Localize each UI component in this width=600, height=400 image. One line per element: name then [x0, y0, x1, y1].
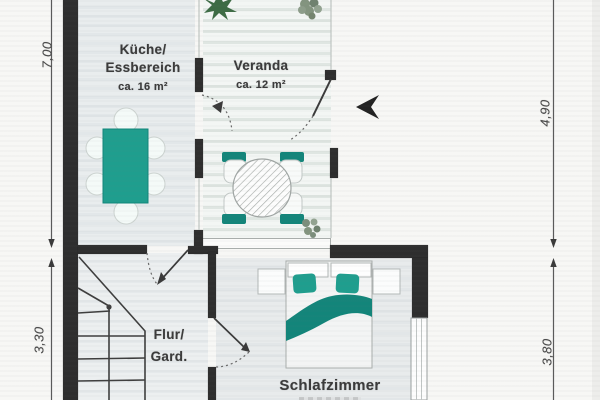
dimension-label-left-upper: 7,00 — [40, 41, 55, 68]
scan-edge-shade — [592, 0, 600, 400]
veranda-threshold — [202, 238, 331, 249]
dimension-label-right-lower: 3,80 — [540, 338, 555, 365]
kitchen-floor — [78, 0, 195, 246]
kitchen-area: ca. 16 m² — [88, 80, 198, 94]
wall-bedroom-top — [330, 245, 428, 258]
veranda-label: Veranda ca. 12 m² — [211, 57, 311, 92]
bedroom-name: Schlafzimmer — [272, 377, 388, 395]
arrow-down-icon — [550, 239, 556, 248]
wall-bedroom-right — [412, 258, 428, 318]
kitchen-name-line1: Küche/ — [88, 41, 198, 59]
wall-kitchen-veranda-mid — [195, 139, 203, 178]
hallway-label: Flur/ Gard. — [144, 324, 194, 368]
wall-veranda-right-stub — [330, 148, 338, 178]
floor-plan: Küche/ Essbereich ca. 16 m² Veranda ca. … — [0, 0, 600, 400]
wall-outer-left — [63, 0, 78, 400]
wall-hall-bedroom-upper — [208, 252, 216, 318]
wall-veranda-hinge-stub — [325, 70, 336, 80]
dimension-label-right-upper: 4,90 — [538, 99, 553, 126]
wall-hall-bedroom-lower — [208, 367, 216, 400]
kitchen-name-line2: Essbereich — [88, 59, 198, 77]
veranda-area: ca. 12 m² — [211, 78, 311, 92]
bedroom-label: Schlafzimmer — [272, 377, 388, 395]
veranda-floor — [203, 0, 331, 239]
hallway-name-line1: Flur/ — [144, 324, 194, 346]
hallway-name-line2: Gard. — [144, 346, 194, 368]
arrow-down-icon — [48, 239, 54, 248]
window — [411, 318, 427, 400]
north-arrow-icon — [356, 95, 379, 119]
wall-kitchen-hall — [78, 245, 147, 254]
kitchen-label: Küche/ Essbereich ca. 16 m² — [88, 41, 198, 94]
veranda-name: Veranda — [211, 57, 311, 75]
arrow-up-icon — [48, 258, 54, 267]
dimension-label-left-lower: 3,30 — [32, 326, 47, 353]
arrow-up-icon — [550, 258, 556, 267]
